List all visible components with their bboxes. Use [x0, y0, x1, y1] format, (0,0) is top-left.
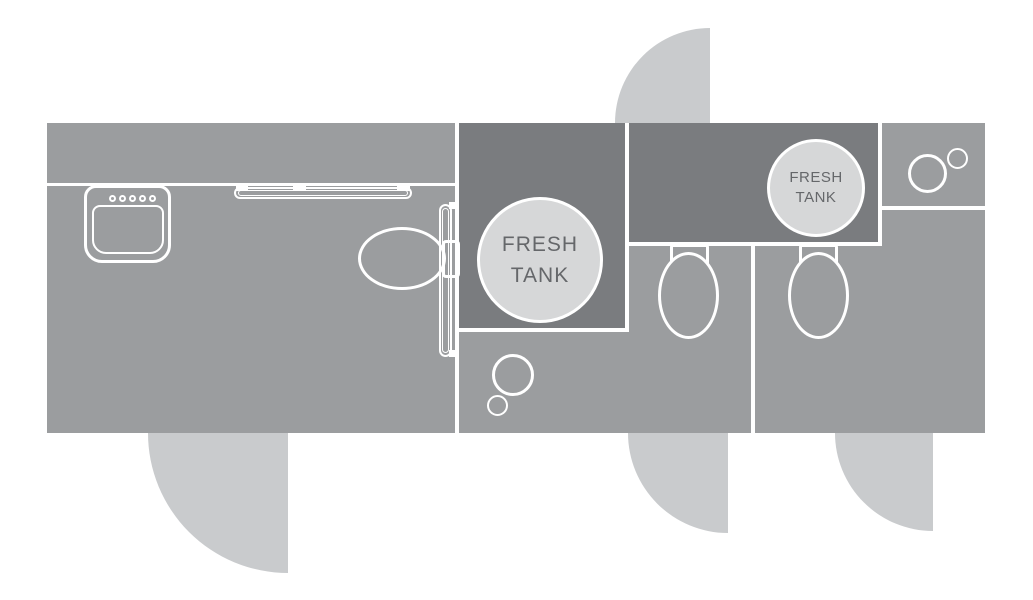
wall-left-room: [455, 123, 459, 433]
fresh-tank-main-label-line2: TANK: [511, 260, 569, 291]
sink-faucet-holes: [109, 195, 171, 202]
fresh-tank-small-label-line1: FRESH: [789, 168, 842, 188]
grab-bar-horizontal: [234, 187, 412, 199]
grab-bar-inner-line: [238, 190, 408, 196]
wall-center: [625, 123, 629, 332]
toilet-bowl-stall-2: [788, 252, 849, 339]
wall-stall-partition: [751, 246, 755, 433]
door-swing-arc-top: [615, 28, 710, 123]
door-swing-arc-bottom-left: [148, 433, 288, 573]
wall-tank-zone-right-side: [878, 123, 882, 246]
counter-edge-right: [882, 206, 985, 210]
wall-tank-zone-center-bottom: [455, 328, 629, 332]
faucet-hole-icon: [119, 195, 126, 202]
sink-basin-left: [92, 205, 164, 254]
grab-bar-vertical: [439, 204, 452, 357]
fresh-tank-main: FRESH TANK: [477, 197, 603, 323]
sink-bowl-right: [908, 154, 947, 193]
toilet-bowl-stall-1: [658, 252, 719, 339]
grab-bar-inner-line: [442, 208, 449, 353]
faucet-hole-icon: [109, 195, 116, 202]
faucet-hole-icon: [149, 195, 156, 202]
fresh-tank-small: FRESH TANK: [767, 139, 865, 237]
sink-drain-middle: [487, 395, 508, 416]
toilet-bowl-accessible: [358, 227, 446, 290]
door-swing-arc-bottom-right: [835, 433, 933, 531]
floor-plan: FRESH TANK FRESH TANK: [47, 123, 985, 433]
door-swing-arc-bottom-middle: [628, 433, 728, 533]
sink-drain-right: [947, 148, 968, 169]
sink-bowl-middle: [492, 354, 534, 396]
fresh-tank-small-label-line2: TANK: [796, 188, 837, 208]
faucet-hole-icon: [139, 195, 146, 202]
faucet-hole-icon: [129, 195, 136, 202]
floorplan-canvas: FRESH TANK FRESH TANK: [0, 0, 1033, 600]
fresh-tank-main-label-line1: FRESH: [502, 229, 578, 260]
